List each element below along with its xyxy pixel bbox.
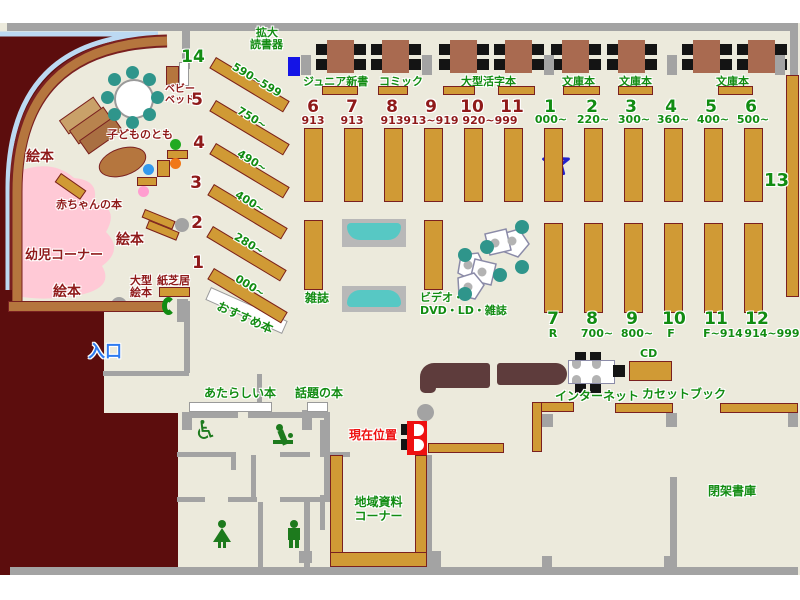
internet-seat-mark-3 (572, 375, 581, 383)
pillar-round (417, 404, 434, 421)
top-label-shelf (718, 86, 753, 95)
wall-stub-bottom-2 (542, 556, 552, 567)
pillar (301, 55, 311, 75)
label-ogata-line2: 絵本 (130, 287, 152, 299)
bookshelf-column (424, 220, 443, 290)
label-cassette: カセットブック (642, 388, 726, 401)
wall-restroom-vlow (258, 502, 263, 568)
chair (458, 287, 472, 301)
reading-table (748, 40, 775, 73)
label-cd: CD (640, 348, 657, 360)
wall-entrance-h (103, 371, 189, 376)
wall-cassette-stub-2 (788, 413, 798, 427)
bookshelf-column (664, 223, 683, 313)
step-shelf-3 (137, 177, 157, 186)
shelf-number: 3 (181, 175, 211, 193)
label-current-location: 現在位置 (349, 429, 397, 442)
label-ehon-1: 絵本 (26, 150, 54, 165)
reading-table (382, 40, 409, 73)
label-ehon-3: 絵本 (53, 285, 81, 300)
wall-restroom-top-b (248, 412, 330, 418)
local-shelf-bottom (330, 552, 427, 567)
top-label-shelf (498, 86, 535, 95)
pillar (667, 55, 677, 75)
cushion-pink (138, 186, 149, 197)
wall-restroom-h2a (177, 497, 205, 502)
local-return-shelf (428, 443, 504, 453)
shelf-number: 4 (184, 135, 214, 153)
baby-bed-shelf (166, 66, 179, 85)
chair (589, 44, 601, 55)
wall-restroom-door-stub (299, 551, 312, 563)
bookshelf-column (584, 223, 603, 313)
chair (354, 44, 366, 55)
chair (126, 66, 139, 79)
man-icon (287, 520, 301, 548)
chair (354, 59, 366, 70)
wall-local-right (427, 455, 432, 553)
wall-right-top (790, 31, 798, 75)
wall-restroom-stub-tr (302, 410, 312, 430)
bookshelf-column (544, 128, 563, 202)
wall-top (7, 23, 798, 31)
step-shelf-2 (157, 160, 170, 177)
reading-table (327, 40, 354, 73)
chair (108, 108, 121, 121)
top-label-shelf (443, 86, 475, 95)
chair (515, 260, 529, 274)
sofa-top (347, 223, 401, 240)
label-internet: インターネット (555, 390, 639, 403)
chair (532, 44, 544, 55)
shelf-range: 914~999 (737, 328, 800, 340)
reading-table (618, 40, 645, 73)
chair (108, 73, 121, 86)
wall-cassette-stub-1 (666, 413, 677, 427)
chair (458, 248, 472, 262)
bookshelf-column (704, 223, 723, 313)
chair (775, 44, 787, 55)
cassette-shelf-2 (720, 403, 798, 413)
bookshelf-column (664, 128, 683, 202)
kamishibai-shelf (159, 287, 190, 297)
chair (151, 91, 164, 104)
label-kamishibai: 紙芝居 (157, 275, 190, 287)
bookshelf-column (344, 128, 363, 202)
chair (720, 59, 732, 70)
shelf-number: 14 (178, 49, 208, 67)
chair (409, 59, 421, 70)
shelf-range: 920~999 (458, 115, 522, 127)
label-magnifier-line1: 拡大 (256, 27, 278, 39)
bookshelf-column (744, 128, 763, 202)
wall-local-v2 (320, 495, 325, 530)
shelf-number: 5 (182, 92, 212, 110)
label-local-line1: 地域資料 (330, 496, 427, 509)
bookshelf-column (704, 128, 723, 202)
wall-children-bottom (8, 301, 165, 312)
reading-table (505, 40, 532, 73)
cassette-shelf-1 (615, 403, 673, 413)
chair (480, 240, 494, 254)
chair (409, 44, 421, 55)
label-kodomo-no-tomo: 子どものとも (107, 129, 173, 141)
reading-table (562, 40, 589, 73)
bookshelf-column (304, 128, 323, 202)
public-phone-icon (162, 297, 175, 315)
chair (477, 59, 489, 70)
bookshelf-column (424, 128, 443, 202)
bookshelf-column (624, 128, 643, 202)
shelf-number: 2 (182, 215, 212, 233)
label-topic-books: 話題の本 (295, 387, 343, 400)
outside-area-bottom-left (0, 413, 178, 575)
bookshelf-column (624, 223, 643, 313)
label-entrance: 入口 (88, 344, 122, 362)
internet-chair-end (613, 365, 625, 377)
wall-restroom-h1a (177, 452, 233, 457)
sofa-bottom (347, 290, 401, 307)
library-floor-map: ♿ 拡大 読書器 ジュニア新書 コミック 大型活字本 文庫本 文庫本 文庫本 1… (0, 0, 800, 600)
label-new-books: あたらしい本 (204, 387, 276, 400)
bookshelf-column (384, 128, 403, 202)
chair (532, 59, 544, 70)
label-magnifier-line2: 読書器 (250, 39, 283, 51)
chair (126, 116, 139, 129)
label-ogata-line1: 大型 (130, 275, 152, 287)
chair (515, 220, 529, 234)
internet-seat-mark-4 (592, 375, 601, 383)
bookshelf-column (544, 223, 563, 313)
wall-internet-stub (542, 414, 553, 427)
wall-local-stub (427, 551, 441, 567)
shelf-number: 1 (183, 255, 213, 273)
internet-shelf-v (532, 402, 542, 452)
label-local-line2: コーナー (330, 510, 427, 523)
service-counter-r (497, 363, 567, 385)
new-books-shelf (189, 402, 272, 412)
service-counter-l-leg (420, 382, 436, 393)
cd-shelf (629, 361, 672, 381)
chair (143, 73, 156, 86)
cushion-orange (170, 158, 181, 169)
reading-table (450, 40, 477, 73)
bookshelf-column (744, 223, 763, 313)
topic-books-shelf (307, 402, 328, 412)
label-yoji-corner: 幼児コーナー (25, 249, 103, 263)
label-video-line2: DVD・LD・雑誌 (420, 305, 507, 317)
cushion-blue (143, 164, 154, 175)
wall-restroom-h1b (280, 452, 310, 457)
wall-restroom-vdiv (251, 455, 256, 500)
pillar (544, 55, 554, 75)
chair (720, 44, 732, 55)
reading-table (693, 40, 720, 73)
pillar (775, 55, 785, 75)
label-closed-stacks: 閉架書庫 (708, 485, 756, 498)
shelf-range: 500~ (721, 114, 785, 126)
top-label-shelf (563, 86, 600, 95)
chair (477, 44, 489, 55)
pillar (422, 55, 432, 75)
wall-local-v1 (320, 420, 325, 452)
chair (101, 91, 114, 104)
top-label-shelf (322, 86, 358, 95)
chair (645, 44, 657, 55)
wall-restroom-h2b (228, 497, 257, 502)
chair (493, 268, 507, 282)
bookshelf-column (464, 128, 483, 202)
wall-stacks-divider (670, 477, 677, 568)
wall-restroom-vstub (231, 452, 236, 470)
woman-icon (213, 520, 231, 548)
bookshelf-column (584, 128, 603, 202)
top-label-shelf (618, 86, 653, 95)
wall-bottom (10, 567, 798, 575)
bookshelf-column (504, 128, 523, 202)
wheelchair-icon: ♿ (194, 418, 217, 444)
shelf-range: 913~919 (399, 115, 463, 127)
chair (645, 59, 657, 70)
wall-restroom-stub-tl (182, 412, 192, 430)
bookshelf-column (304, 220, 323, 290)
phone-stand (177, 299, 188, 322)
top-label-shelf (378, 86, 408, 95)
magnifier-device (288, 57, 300, 76)
chair (589, 59, 601, 70)
label-akachan: 赤ちゃんの本 (56, 199, 122, 211)
chair (143, 108, 156, 121)
label-shelf-13: 13 (764, 172, 789, 191)
label-ehon-2: 絵本 (116, 233, 144, 248)
baby-change-icon (272, 424, 296, 448)
label-zasshi: 雑誌 (305, 292, 329, 305)
